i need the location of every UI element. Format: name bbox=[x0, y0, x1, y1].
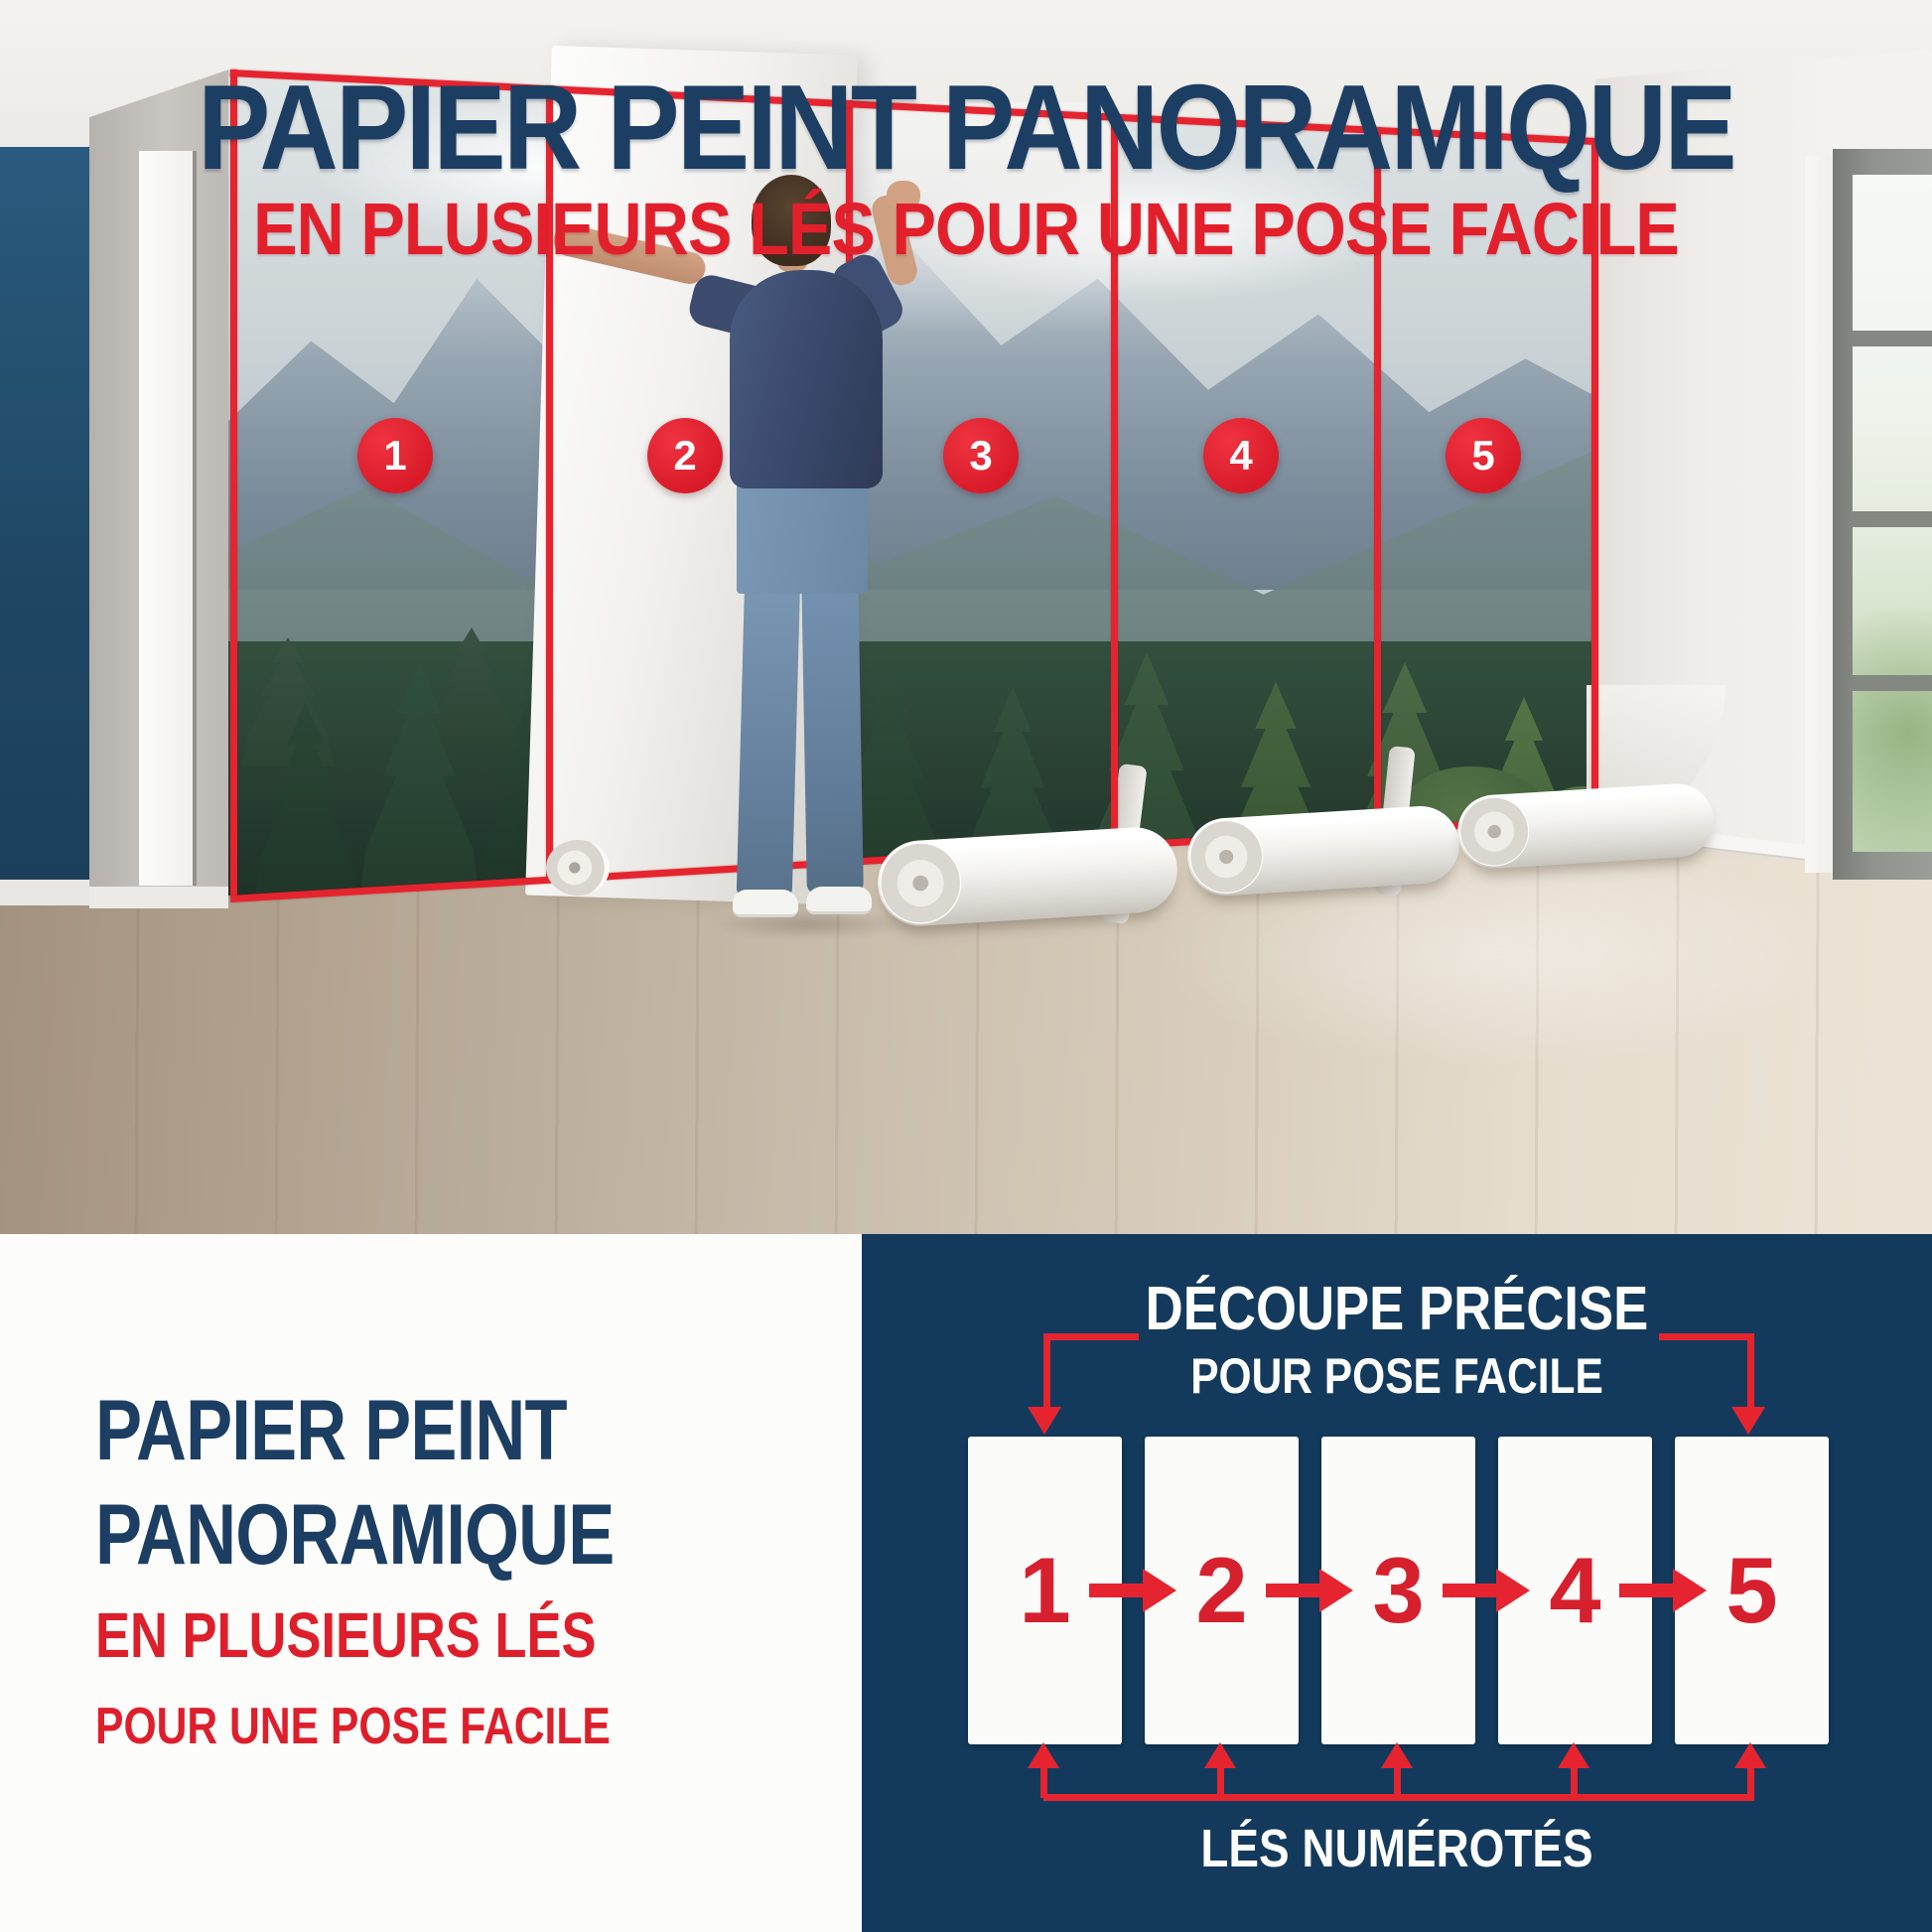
diagram-caption: LÉS NUMÉROTÉS bbox=[942, 1818, 1852, 1879]
page-title: PAPIER PEINT PANORAMIQUE bbox=[96, 58, 1835, 197]
bracket-line bbox=[1040, 1766, 1047, 1798]
bracket-line bbox=[1217, 1766, 1224, 1798]
arrow-right-icon bbox=[1089, 1569, 1176, 1612]
diagram-strip-label: 4 bbox=[1549, 1537, 1600, 1644]
arrow-down-icon bbox=[1731, 1407, 1765, 1435]
man-left-leg bbox=[737, 570, 801, 898]
room-photo: PAPIER PEINT PANORAMIQUE EN PLUSIEURS LÉ… bbox=[0, 0, 1932, 1234]
bracket-line bbox=[1747, 1766, 1754, 1798]
man-right-leg bbox=[801, 571, 864, 895]
man-left-shoe bbox=[733, 890, 798, 917]
arrow-right-icon bbox=[1619, 1569, 1707, 1612]
strips-diagram: DÉCOUPE PRÉCISE POUR POSE FACILE 1 2 3 4… bbox=[862, 1234, 1932, 1932]
diagram-title-line2: POUR POSE FACILE bbox=[942, 1347, 1852, 1405]
bottom-text-section: PAPIER PEINT PANORAMIQUE EN PLUSIEURS LÉ… bbox=[0, 1234, 862, 1932]
man-jeans bbox=[737, 475, 868, 594]
poster: PAPIER PEINT PANORAMIQUE EN PLUSIEURS LÉ… bbox=[0, 0, 1932, 1932]
bracket-line bbox=[1043, 1333, 1139, 1340]
arrow-up-icon bbox=[1558, 1742, 1589, 1768]
bracket-line bbox=[1571, 1766, 1578, 1798]
bottom-subtitle-line1: EN PLUSIEURS LÉS bbox=[95, 1598, 596, 1672]
arrow-right-icon bbox=[1266, 1569, 1353, 1612]
diagram-strip-label: 1 bbox=[1019, 1537, 1070, 1644]
bracket-line bbox=[1747, 1333, 1754, 1409]
man-tshirt bbox=[730, 270, 883, 488]
bracket-line bbox=[1394, 1766, 1401, 1798]
man-right-shoe bbox=[806, 887, 872, 914]
arrow-up-icon bbox=[1204, 1742, 1236, 1768]
arrow-up-icon bbox=[1381, 1742, 1413, 1768]
bottom-title-line2: PANORAMIQUE bbox=[95, 1486, 615, 1585]
diagram-strip-label: 3 bbox=[1372, 1537, 1424, 1644]
bottom-title-line1: PAPIER PEINT bbox=[95, 1382, 567, 1480]
bracket-line bbox=[1659, 1333, 1754, 1340]
diagram-strip-label: 2 bbox=[1195, 1537, 1247, 1644]
arrow-up-icon bbox=[1028, 1742, 1059, 1768]
arrow-down-icon bbox=[1028, 1407, 1061, 1435]
arrow-up-icon bbox=[1734, 1742, 1766, 1768]
bracket-line bbox=[1043, 1333, 1050, 1409]
page-subtitle: EN PLUSIEURS LÉS POUR UNE POSE FACILE bbox=[96, 187, 1835, 271]
arrow-right-icon bbox=[1443, 1569, 1530, 1612]
bottom-subtitle-line2: POUR UNE POSE FACILE bbox=[95, 1697, 611, 1756]
diagram-strip-label: 5 bbox=[1725, 1537, 1777, 1644]
